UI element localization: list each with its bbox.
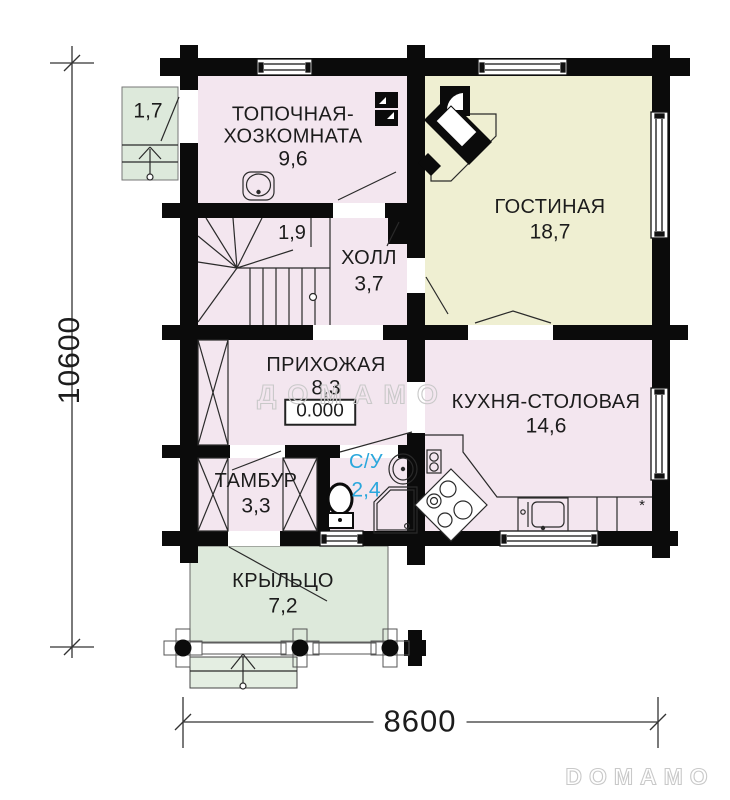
room-label-topochnaya: ТОПОЧНАЯ-ХОЗКОМНАТА — [193, 104, 393, 147]
window — [500, 531, 598, 546]
room-area-topochnaya: 9,6 — [278, 149, 307, 172]
room-label-gostinaya: ГОСТИНАЯ — [494, 197, 605, 219]
room-label-holl: ХОЛЛ — [341, 248, 397, 270]
room-area-kuhnya: 14,6 — [526, 416, 567, 439]
window — [651, 112, 668, 238]
watermark-center: ДОМАМО — [257, 380, 449, 411]
room-label-kryltso: КРЫЛЬЦО — [232, 571, 334, 593]
room-label-tambur: ТАМБУР — [215, 471, 298, 493]
window — [320, 531, 363, 546]
room-area-understair: 1,9 — [278, 223, 306, 245]
watermark-bottom-right: DOMAMO — [565, 764, 714, 791]
room-area-balkon: 1,7 — [133, 101, 162, 124]
dimension-height: 10600 — [54, 306, 86, 414]
room-label-prihozhaya: ПРИХОЖАЯ — [266, 355, 385, 377]
room-label-kuhnya: КУХНЯ-СТОЛОВАЯ — [452, 392, 641, 414]
room-area-gostinaya: 18,7 — [530, 222, 571, 245]
kitchen-note-marker: * — [639, 498, 645, 514]
room-area-su: 2,4 — [351, 480, 380, 503]
room-label-su: С/У — [349, 452, 383, 474]
floor-plan: ТОПОЧНАЯ-ХОЗКОМНАТА 9,6 ГОСТИНАЯ 18,7 ХО… — [0, 0, 730, 800]
room-area-tambur: 3,3 — [241, 496, 270, 519]
dimension-width: 8600 — [374, 704, 467, 737]
room-area-kryltso: 7,2 — [268, 596, 297, 619]
room-area-holl: 3,7 — [354, 274, 383, 297]
toilet-icon — [328, 484, 353, 528]
sink-icon — [389, 454, 417, 484]
window — [651, 388, 668, 480]
window — [478, 59, 567, 75]
window — [257, 59, 312, 75]
